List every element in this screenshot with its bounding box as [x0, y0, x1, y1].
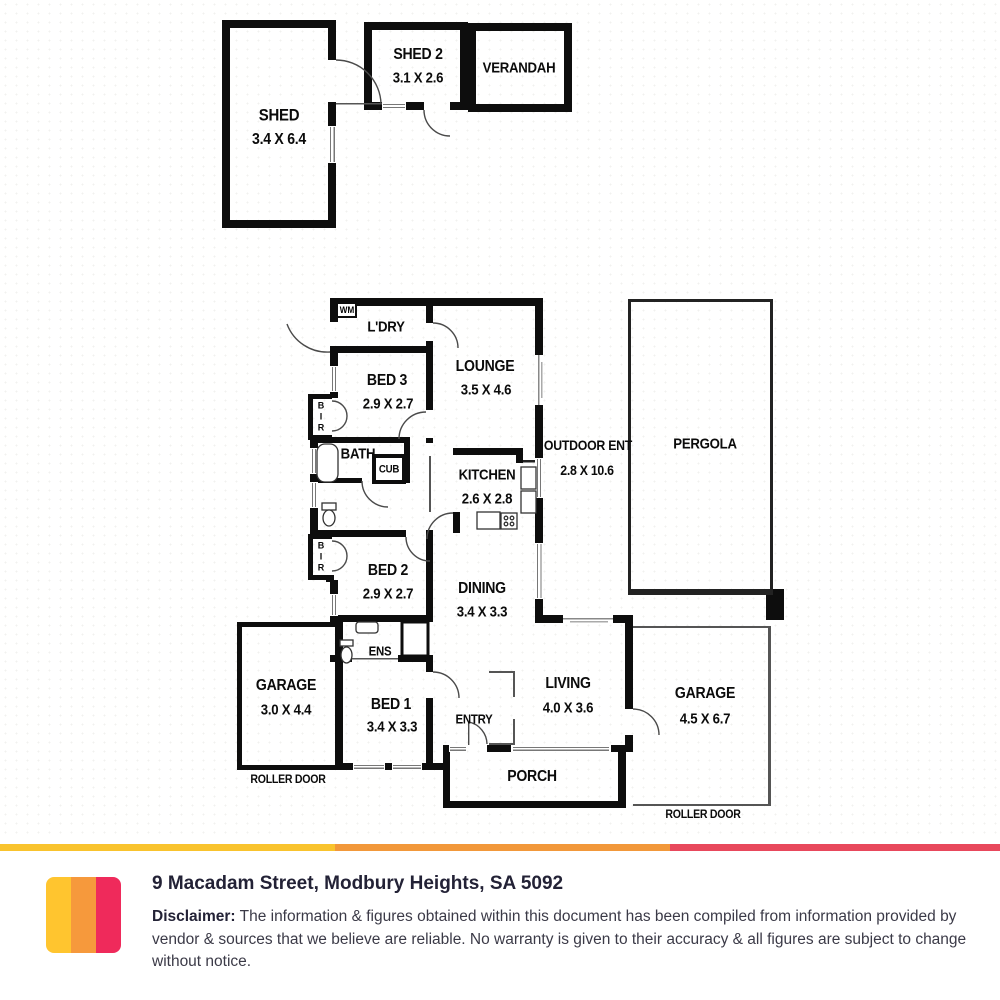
brand-color-bar	[0, 844, 1000, 851]
label-roller-door-left: ROLLER DOOR	[250, 773, 325, 785]
room-label-kitchen: KITCHEN	[459, 468, 516, 483]
room-dims-garage-left: 3.0 X 4.4	[261, 703, 311, 718]
bir-letter: B	[318, 401, 325, 412]
room-dims-kitchen: 2.6 X 2.8	[462, 492, 512, 507]
label-roller-door-right: ROLLER DOOR	[665, 808, 740, 820]
room-label-pergola: PERGOLA	[673, 437, 736, 452]
brand-bar-orange	[335, 844, 670, 851]
brand-bar-red	[670, 844, 1000, 851]
agency-logo	[46, 877, 121, 953]
bir-letter: R	[318, 563, 325, 574]
room-dims-bed3: 2.9 X 2.7	[363, 397, 413, 412]
room-label-shed2: SHED 2	[393, 47, 442, 63]
room-label-laundry: L'DRY	[367, 320, 404, 335]
room-dims-bed1: 3.4 X 3.3	[367, 720, 417, 735]
room-label-bed3: BED 3	[367, 373, 407, 389]
brand-bar-yellow	[0, 844, 335, 851]
property-address: 9 Macadam Street, Modbury Heights, SA 50…	[152, 873, 563, 895]
room-dims-living: 4.0 X 3.6	[543, 701, 593, 716]
room-label-ens: ENS	[369, 645, 392, 658]
bir-letter: B	[318, 541, 325, 552]
room-label-dining: DINING	[458, 581, 506, 597]
disclaimer-text: Disclaimer: The information & figures ob…	[152, 906, 992, 974]
room-label-shed: SHED	[259, 107, 300, 124]
floorplan-area: SHED 3.4 X 6.4 SHED 2 3.1 X 2.6 VERANDAH…	[0, 0, 1000, 840]
room-label-cub: CUB	[379, 465, 399, 476]
room-label-bed2: BED 2	[368, 563, 408, 579]
room-label-bed1: BED 1	[371, 697, 411, 713]
disclaimer-body: The information & figures obtained withi…	[152, 908, 966, 970]
room-label-living: LIVING	[545, 676, 590, 692]
room-label-garage-right: GARAGE	[675, 686, 735, 702]
room-label-porch: PORCH	[507, 769, 557, 785]
logo-stripe-yellow	[46, 877, 71, 953]
room-dims-shed: 3.4 X 6.4	[252, 132, 306, 148]
room-dims-garage-right: 4.5 X 6.7	[680, 712, 730, 727]
bir-letter: R	[318, 423, 325, 434]
room-dims-shed2: 3.1 X 2.6	[393, 71, 443, 86]
washing-machine-box: WM	[336, 302, 357, 318]
room-label-entry: ENTRY	[455, 713, 492, 726]
room-dims-lounge: 3.5 X 4.6	[461, 383, 511, 398]
room-label-lounge: LOUNGE	[456, 359, 515, 375]
room-dims-dining: 3.4 X 3.3	[457, 605, 507, 620]
bir-label-bed3: B I R	[318, 401, 325, 434]
bir-letter: I	[318, 412, 325, 423]
room-label-outdoor-ent: OUTDOOR ENT	[544, 438, 632, 452]
washing-machine-label: WM	[339, 305, 353, 315]
room-dims-outdoor-ent: 2.8 X 10.6	[560, 463, 614, 477]
logo-stripe-orange	[71, 877, 96, 953]
bir-label-bed2: B I R	[318, 541, 325, 574]
room-label-bath: BATH	[341, 447, 376, 462]
room-dims-bed2: 2.9 X 2.7	[363, 587, 413, 602]
logo-stripe-red	[96, 877, 121, 953]
floorplan-page: SHED 3.4 X 6.4 SHED 2 3.1 X 2.6 VERANDAH…	[0, 0, 1000, 1000]
room-label-verandah: VERANDAH	[483, 61, 556, 76]
disclaimer-label: Disclaimer:	[152, 908, 236, 925]
bir-letter: I	[318, 552, 325, 563]
room-label-garage-left: GARAGE	[256, 678, 316, 694]
floorplan-drawing	[0, 0, 1000, 840]
